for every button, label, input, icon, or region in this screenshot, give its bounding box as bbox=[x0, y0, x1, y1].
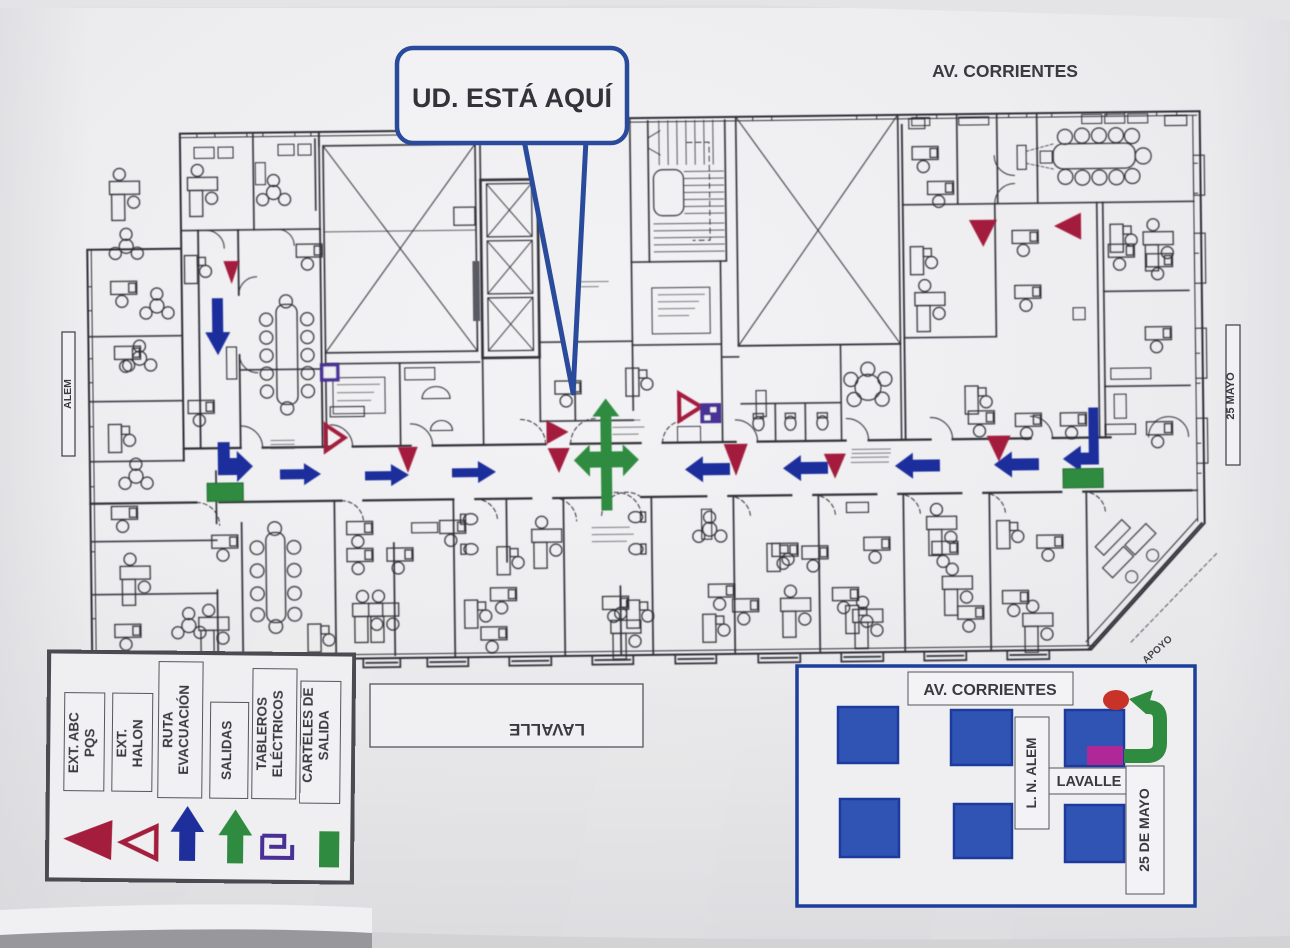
svg-text:LAVALLE: LAVALLE bbox=[1057, 774, 1122, 790]
svg-text:25 MAYO: 25 MAYO bbox=[1225, 372, 1237, 420]
svg-text:UD. ESTÁ AQUÍ: UD. ESTÁ AQUÍ bbox=[412, 82, 614, 113]
svg-text:TABLEROS: TABLEROS bbox=[254, 697, 270, 770]
svg-text:RUTA: RUTA bbox=[160, 711, 175, 748]
svg-text:LAVALLE: LAVALLE bbox=[509, 720, 585, 739]
svg-text:SALIDA: SALIDA bbox=[316, 710, 332, 761]
svg-text:HALON: HALON bbox=[130, 719, 146, 767]
svg-text:ELÉCTRICOS: ELÉCTRICOS bbox=[270, 690, 286, 777]
svg-text:EVACUACIÓN: EVACUACIÓN bbox=[176, 685, 192, 775]
svg-text:25 DE MAYO: 25 DE MAYO bbox=[1136, 788, 1152, 872]
svg-text:AV. CORRIENTES: AV. CORRIENTES bbox=[932, 61, 1078, 81]
svg-text:L. N. ALEM: L. N. ALEM bbox=[1024, 738, 1039, 809]
svg-text:EXT.: EXT. bbox=[114, 729, 129, 758]
svg-text:AV. CORRIENTES: AV. CORRIENTES bbox=[923, 682, 1057, 699]
svg-text:SALIDAS: SALIDAS bbox=[219, 721, 235, 780]
svg-text:CARTELES DE: CARTELES DE bbox=[300, 687, 316, 782]
svg-text:EXT. ABC: EXT. ABC bbox=[66, 712, 82, 773]
svg-text:PQS: PQS bbox=[82, 729, 97, 758]
svg-text:ALEM: ALEM bbox=[62, 379, 74, 409]
